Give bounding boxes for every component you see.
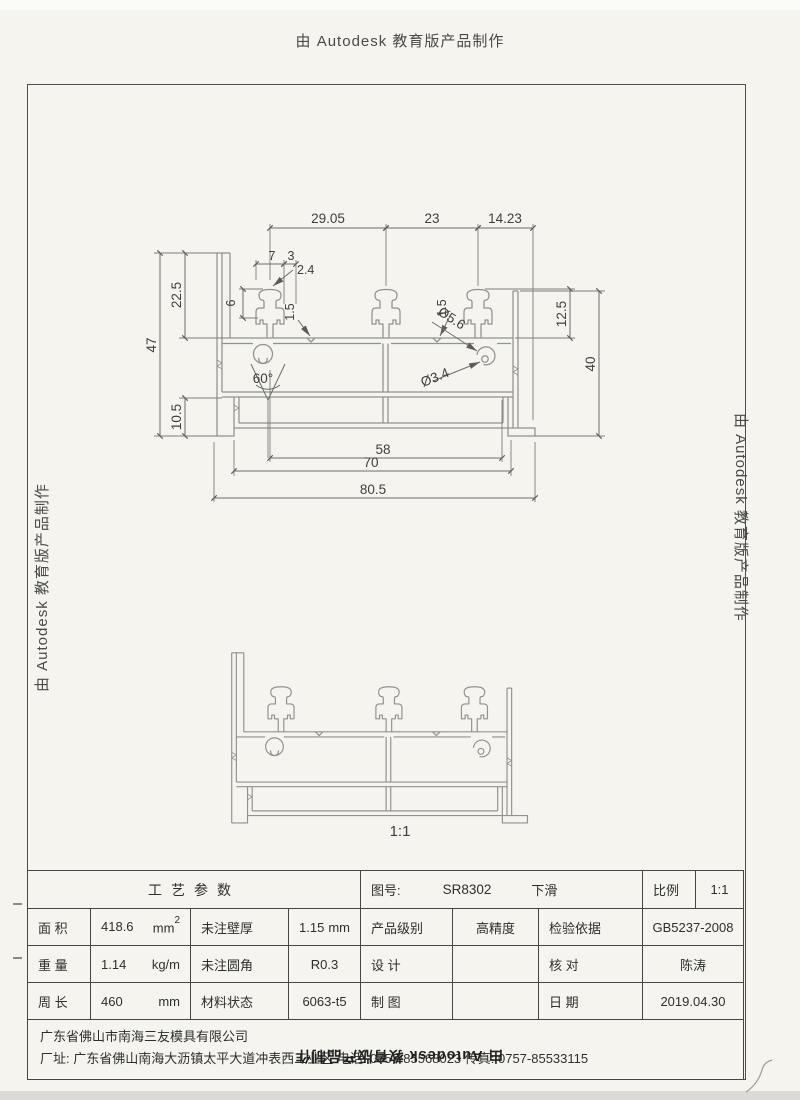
dim-label: 29.05	[311, 211, 345, 226]
title-block-table: 工艺参数 图号: SR8302 下滑 比例 1:1 面 积 418.6mm2 未…	[27, 870, 744, 1020]
scan-edge-top	[0, 0, 800, 10]
dim-label: 70	[363, 455, 378, 470]
company-name: 广东省佛山市南海三友模具有限公司	[40, 1026, 743, 1048]
row-label: 周 长	[28, 983, 91, 1020]
temper-value: 6063-t5	[289, 983, 361, 1020]
row-label: 材料状态	[191, 983, 289, 1020]
dim-label: 1.5	[283, 303, 297, 320]
dim-label: 80.5	[360, 482, 386, 497]
scan-edge-bottom	[0, 1091, 800, 1100]
dim-label: 40	[583, 356, 598, 371]
perimeter-value: 460mm	[101, 994, 190, 1009]
margin-tick	[13, 957, 22, 959]
process-params-header: 工艺参数	[28, 871, 361, 909]
dim-label: 23	[424, 211, 439, 226]
dim-label: Ø5.6	[435, 304, 468, 333]
row-label: 制 图	[361, 983, 453, 1020]
dim-label: 6	[224, 299, 238, 306]
dim-label: Ø3.4	[419, 365, 452, 390]
drawing-no-label: 图号:	[371, 880, 401, 899]
wall-thickness-value: 1.15mm	[299, 920, 360, 935]
row-label: 未注壁厚	[191, 909, 289, 946]
drafter-value	[453, 983, 539, 1020]
weight-value: 1.14kg/m	[101, 957, 190, 972]
dimension-annotations: 29.05 23 14.23 7 3 2.4 6 22.5 47 10.5 12…	[144, 211, 605, 502]
watermark-bottom-flipped: 由 Autodesk 教育版产品制作	[295, 1046, 503, 1067]
dim-label: 12.5	[554, 301, 569, 327]
margin-tick	[13, 903, 22, 905]
dim-label: 47	[144, 337, 159, 352]
dim-label: 3	[288, 249, 295, 263]
standard-value: GB5237-2008	[643, 909, 744, 946]
row-label: 设 计	[361, 946, 453, 983]
dim-label: 22.5	[169, 282, 184, 308]
row-label: 未注圆角	[191, 946, 289, 983]
date-value: 2019.04.30	[643, 983, 744, 1020]
designer-value	[453, 946, 539, 983]
checker-value: 陈涛	[643, 946, 744, 983]
scale-value: 1:1	[696, 871, 744, 909]
dim-label: 14.23	[488, 211, 522, 226]
row-label: 核 对	[539, 946, 643, 983]
row-label: 重 量	[28, 946, 91, 983]
row-label: 日 期	[539, 983, 643, 1020]
scale-label: 比例	[643, 871, 696, 909]
area-value: 418.6mm2	[101, 919, 190, 935]
dim-label: 2.4	[297, 263, 314, 277]
scale-caption: 1:1	[355, 823, 445, 840]
drawing-number-cell: 图号: SR8302 下滑	[371, 880, 642, 899]
drawing-name: 下滑	[531, 880, 557, 899]
dim-label: 60°	[253, 371, 273, 386]
grade-value: 高精度	[453, 909, 539, 946]
row-label: 检验依据	[539, 909, 643, 946]
row-label: 产品级别	[361, 909, 453, 946]
profile-section-dimensioned: 29.05 23 14.23 7 3 2.4 6 22.5 47 10.5 12…	[140, 188, 630, 518]
fillet-value: R0.3	[289, 946, 361, 983]
scan-crease-mark	[738, 1040, 783, 1095]
drawing-no-value: SR8302	[443, 882, 492, 897]
dim-label: 10.5	[169, 404, 184, 430]
dim-label: 7	[269, 249, 276, 263]
row-label: 面 积	[28, 909, 91, 946]
watermark-top: 由 Autodesk 教育版产品制作	[0, 30, 800, 51]
